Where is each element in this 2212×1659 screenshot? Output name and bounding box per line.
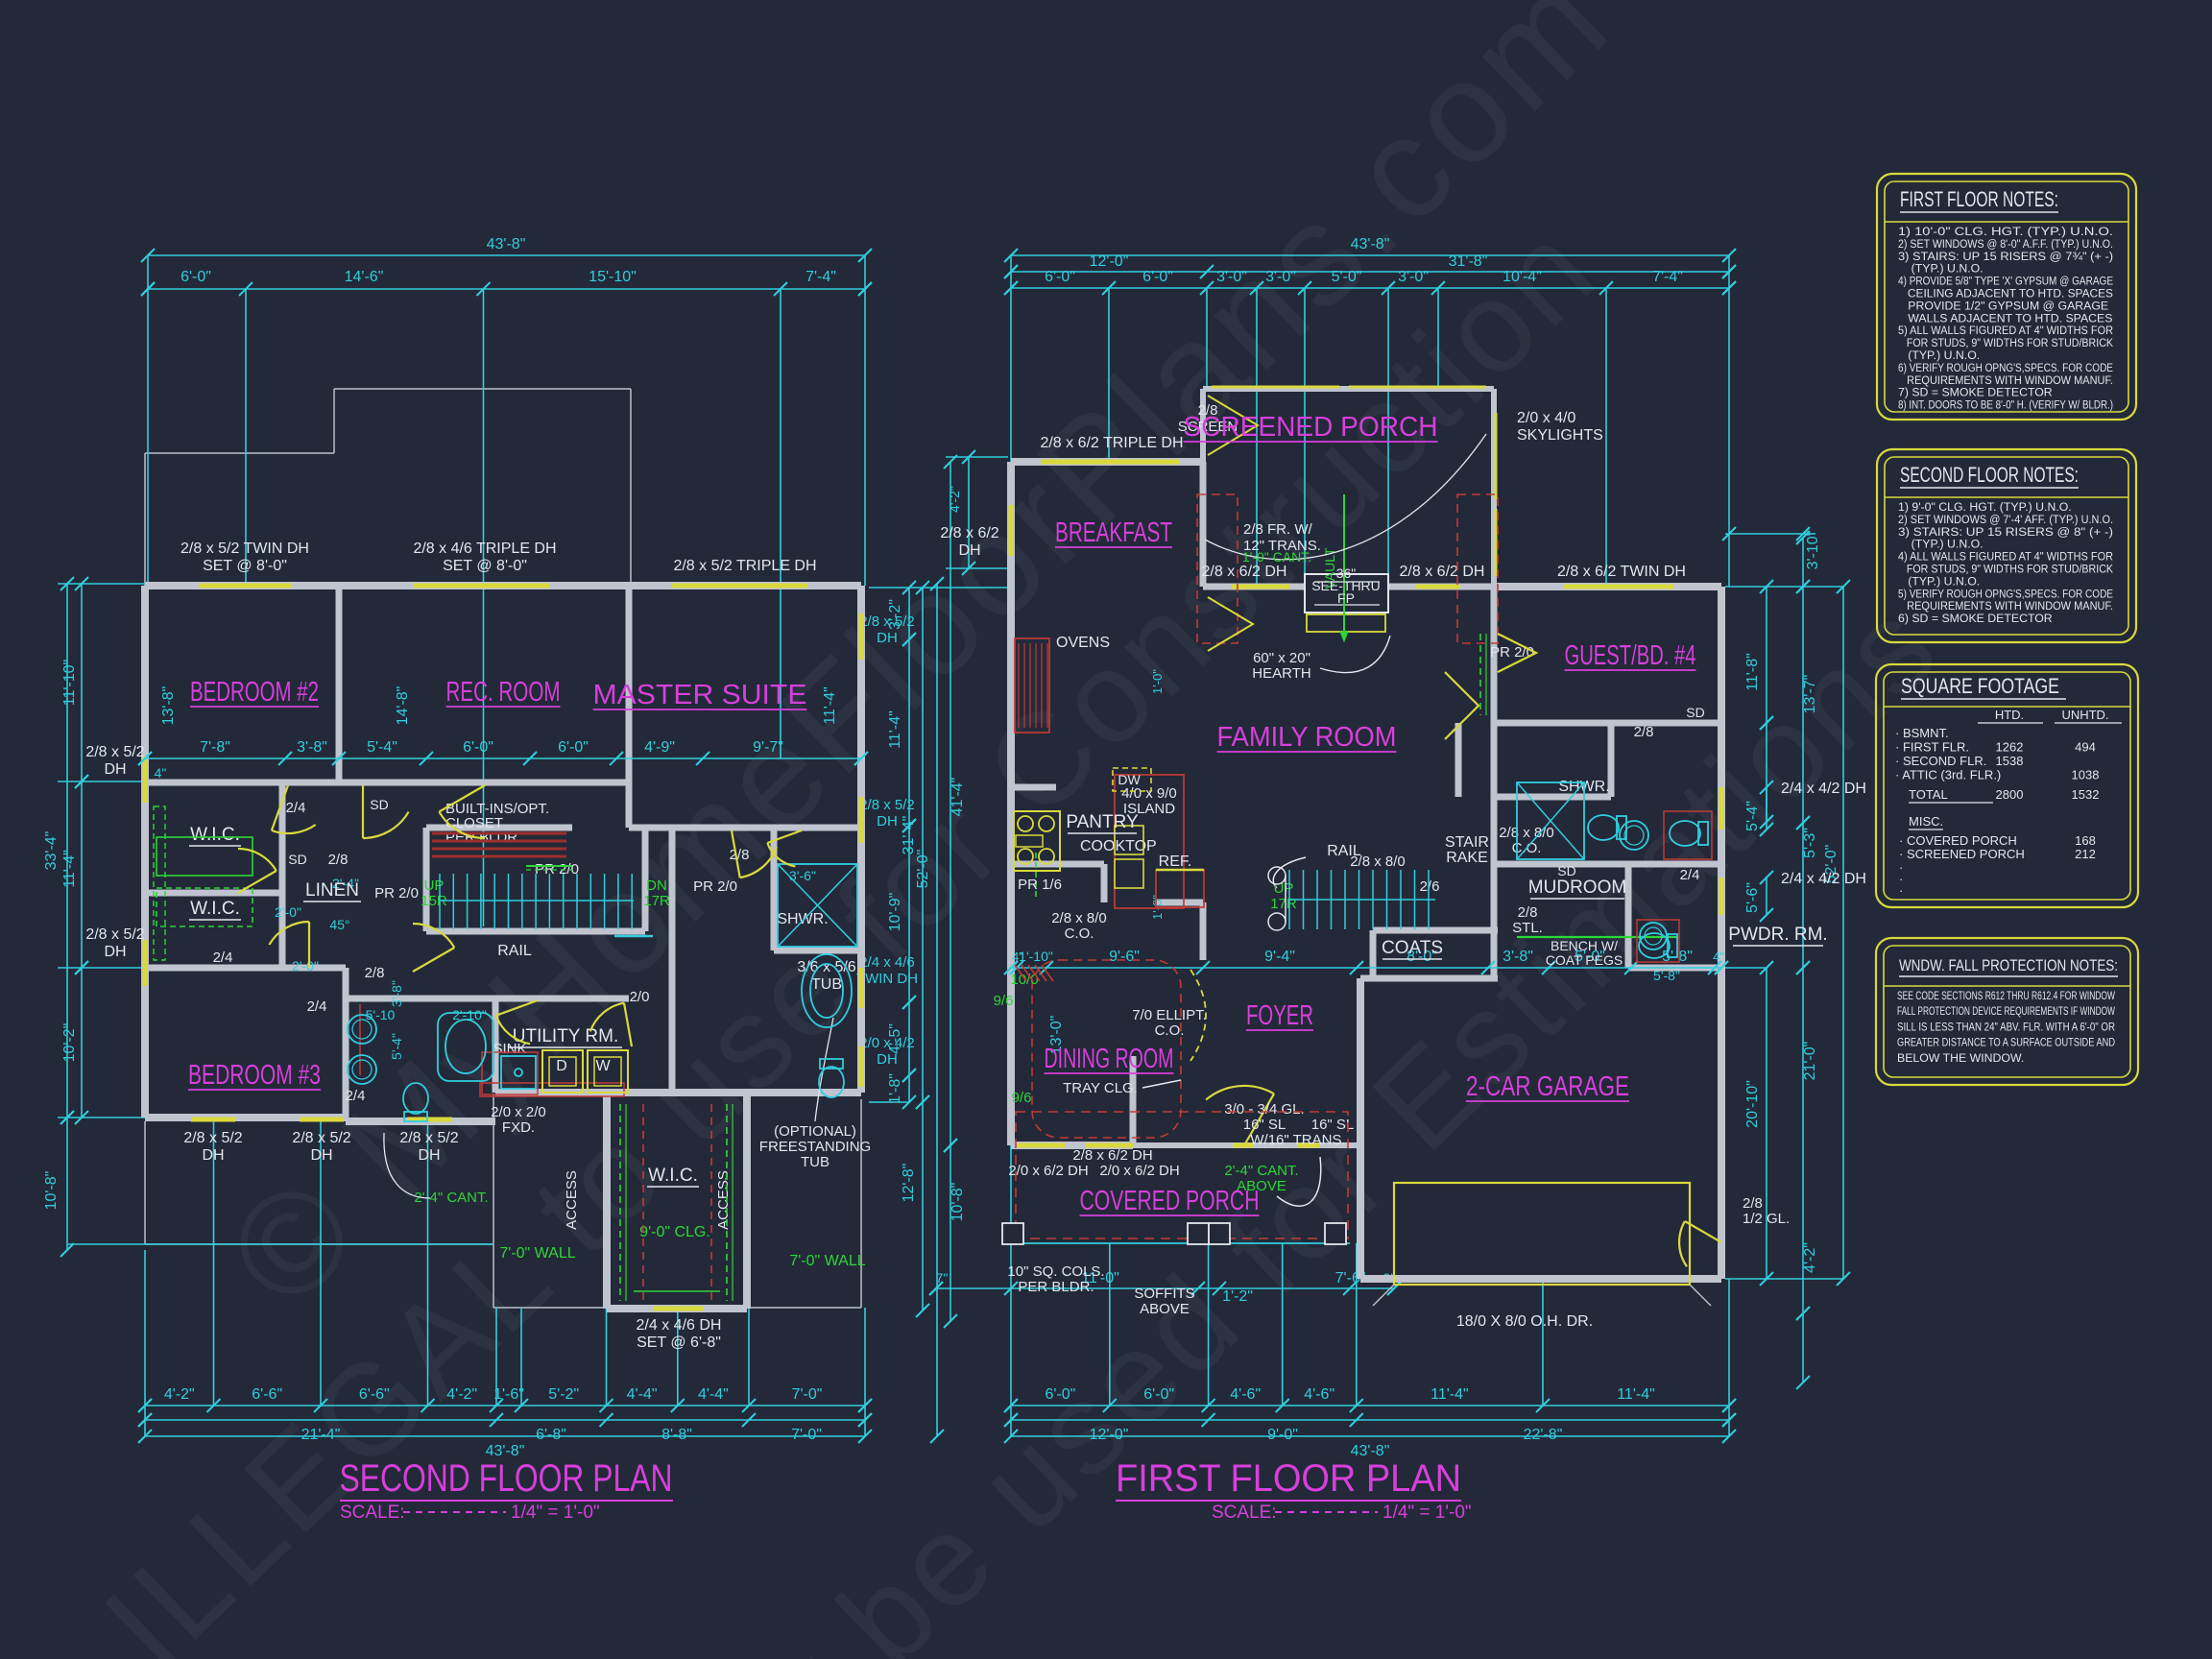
svg-text:2/4: 2/4	[286, 800, 306, 816]
svg-text:SINK: SINK	[493, 1041, 526, 1057]
svg-text:(TYP.) U.N.O.: (TYP.) U.N.O.	[1898, 574, 1980, 588]
svg-text:43'-8": 43'-8"	[1351, 236, 1390, 252]
svg-text:C.O.: C.O.	[1065, 926, 1094, 942]
svg-text:3'-8": 3'-8"	[1503, 949, 1533, 965]
svg-text:ABOVE: ABOVE	[1237, 1178, 1286, 1194]
svg-text:DH: DH	[202, 1147, 224, 1164]
svg-text:2/8: 2/8	[1518, 904, 1538, 921]
svg-text:TWIN DH: TWIN DH	[856, 971, 918, 987]
svg-text:5'-2": 5'-2"	[548, 1386, 579, 1403]
svg-text:COVERED PORCH: COVERED PORCH	[1080, 1186, 1260, 1216]
svg-text:43'-8": 43'-8"	[487, 236, 526, 252]
svg-text:PR 2/0: PR 2/0	[374, 885, 419, 902]
svg-text:4) PROVIDE 5/8" TYPE 'X' GYPSU: 4) PROVIDE 5/8" TYPE 'X' GYPSUM @ GARAGE	[1898, 275, 2113, 288]
svg-text:2/4 x 4/6: 2/4 x 4/6	[859, 954, 915, 971]
svg-text:SKYLIGHTS: SKYLIGHTS	[1517, 427, 1603, 444]
svg-text:12'-0": 12'-0"	[1090, 253, 1129, 270]
svg-text:10" SQ. COLS.: 10" SQ. COLS.	[1007, 1263, 1104, 1280]
svg-text:2/8: 2/8	[365, 965, 385, 981]
svg-text:2/4 x 4/6 DH: 2/4 x 4/6 DH	[637, 1317, 722, 1334]
svg-text:PROVIDE 1/2" GYPSUM @ GARAGE: PROVIDE 1/2" GYPSUM @ GARAGE	[1898, 299, 2108, 312]
svg-text:13'-8": 13'-8"	[160, 686, 177, 726]
svg-text:1) 9'-0" CLG. HGT. (TYP.) U.N: 1) 9'-0" CLG. HGT. (TYP.) U.N.O.	[1898, 500, 2072, 514]
svg-text:4'-2": 4'-2"	[446, 1386, 477, 1403]
svg-text:5'-3": 5'-3"	[1802, 828, 1818, 858]
svg-text:6'-6": 6'-6"	[252, 1386, 282, 1403]
svg-text:11'-4": 11'-4"	[887, 710, 903, 749]
svg-text:SOFFITS: SOFFITS	[1134, 1286, 1194, 1302]
svg-text:2/8 x 5/2: 2/8 x 5/2	[292, 1130, 350, 1146]
svg-text:8'-8": 8'-8"	[661, 1427, 692, 1443]
svg-text:5) ALL WALLS FIGURED AT 4" WID: 5) ALL WALLS FIGURED AT 4" WIDTHS FOR	[1898, 324, 2113, 337]
svg-text:2/8: 2/8	[328, 852, 349, 868]
svg-text:PR 2/0: PR 2/0	[693, 878, 737, 895]
svg-text:13'-7": 13'-7"	[1802, 675, 1818, 714]
svg-text:9/6: 9/6	[1012, 1090, 1032, 1106]
svg-text:W/16" TRANS.: W/16" TRANS.	[1250, 1132, 1345, 1148]
svg-text:9/6: 9/6	[994, 993, 1014, 1009]
svg-text:4'-6": 4'-6"	[1230, 1386, 1261, 1403]
svg-text:2/8 x 6/2 DH: 2/8 x 6/2 DH	[1400, 564, 1485, 580]
svg-text:494: 494	[2075, 740, 2096, 755]
svg-text:1) 10'-0" CLG. HGT. (TYP.) U.: 1) 10'-0" CLG. HGT. (TYP.) U.N.O.	[1898, 225, 2113, 238]
svg-text:18/0 X 8/0 O.H. DR.: 18/0 X 8/0 O.H. DR.	[1456, 1313, 1593, 1330]
svg-text:BENCH W/: BENCH W/	[1551, 938, 1618, 953]
svg-text:14'-8": 14'-8"	[395, 686, 411, 726]
svg-text:W.I.C.: W.I.C.	[190, 899, 240, 919]
svg-text:REQUIREMENTS WITH WINDOW MANUF: REQUIREMENTS WITH WINDOW MANUF.	[1898, 599, 2113, 613]
svg-text:DN: DN	[646, 878, 667, 894]
svg-text:2/8 x 6/2 TRIPLE DH: 2/8 x 6/2 TRIPLE DH	[1040, 435, 1183, 451]
svg-text:MUDROOM: MUDROOM	[1528, 878, 1626, 898]
svg-text:4'-2": 4'-2"	[947, 486, 962, 513]
svg-text:11'-4": 11'-4"	[1431, 1386, 1469, 1403]
svg-text:6'-6": 6'-6"	[359, 1386, 390, 1403]
svg-text:6'-0": 6'-0"	[558, 739, 589, 756]
svg-text:FOYER: FOYER	[1246, 1000, 1313, 1031]
svg-text:(OPTIONAL): (OPTIONAL)	[774, 1123, 856, 1140]
svg-text:60" x 20": 60" x 20"	[1253, 650, 1310, 666]
svg-text:SCALE:: SCALE:	[1212, 1503, 1277, 1523]
svg-text:(TYP.) U.N.O.: (TYP.) U.N.O.	[1898, 349, 1980, 362]
svg-text:DH: DH	[310, 1147, 332, 1164]
svg-text:2/8 x 6/2 DH: 2/8 x 6/2 DH	[1202, 564, 1287, 580]
svg-text:2'-0": 2'-0"	[275, 904, 301, 920]
svg-text:5'-8": 5'-8"	[1653, 968, 1680, 983]
svg-text:FXD.: FXD.	[502, 1119, 535, 1136]
svg-text:2/8 x 4/6 TRIPLE DH: 2/8 x 4/6 TRIPLE DH	[413, 541, 556, 557]
svg-text:SD: SD	[1686, 705, 1704, 720]
svg-text:MISC.: MISC.	[1909, 814, 1943, 829]
svg-text:22'-8": 22'-8"	[1524, 1427, 1563, 1443]
svg-text:11'-8": 11'-8"	[1744, 653, 1761, 691]
svg-text:1038: 1038	[2072, 768, 2100, 782]
svg-text:RAKE: RAKE	[1446, 850, 1488, 866]
svg-text:OVENS: OVENS	[1056, 635, 1110, 651]
svg-text:WNDW. FALL PROTECTION NOTES:: WNDW. FALL PROTECTION NOTES:	[1899, 956, 2118, 974]
svg-text:1'-2": 1'-2"	[1222, 1288, 1253, 1305]
svg-text:7": 7"	[936, 1270, 949, 1286]
svg-text:33'-4": 33'-4"	[43, 831, 60, 871]
svg-text:6) SD = SMOKE DETECTOR: 6) SD = SMOKE DETECTOR	[1898, 612, 2053, 625]
svg-text:8) INT. DOORS TO BE 8'-0" H. (: 8) INT. DOORS TO BE 8'-0" H. (VERIFY W/ …	[1898, 398, 2113, 412]
svg-text:SECOND FLOOR PLAN: SECOND FLOOR PLAN	[340, 1457, 673, 1500]
svg-text:2/8 x 5/2: 2/8 x 5/2	[85, 744, 144, 760]
svg-text:2/4 x 4/2 DH: 2/4 x 4/2 DH	[1781, 781, 1866, 797]
svg-text:2'-0": 2'-0"	[292, 958, 319, 974]
svg-text:6'-0": 6'-0"	[1142, 269, 1173, 285]
svg-text:ACCESS: ACCESS	[715, 1170, 732, 1230]
svg-text:3) STAIRS: UP 15 RISERS @ 7¾": 3) STAIRS: UP 15 RISERS @ 7¾" (+ -)	[1898, 250, 2113, 263]
svg-text:2/8 x 6/2 DH: 2/8 x 6/2 DH	[1072, 1147, 1152, 1164]
svg-text:16" SL: 16" SL	[1243, 1117, 1286, 1133]
svg-text:SD: SD	[370, 797, 388, 812]
svg-text:11'-10": 11'-10"	[61, 660, 78, 706]
svg-text:UP: UP	[424, 878, 445, 894]
svg-text:4/0 x 9/0: 4/0 x 9/0	[1121, 785, 1177, 802]
svg-text:11'-4": 11'-4"	[822, 686, 838, 725]
svg-text:DW: DW	[1118, 772, 1141, 787]
svg-text:2/8 x 5/2: 2/8 x 5/2	[859, 797, 915, 813]
svg-text:4) ALL WALLS FIGURED AT 4" WID: 4) ALL WALLS FIGURED AT 4" WIDTHS FOR	[1898, 550, 2113, 564]
svg-text:9'-6": 9'-6"	[1109, 949, 1140, 965]
svg-text:2/4: 2/4	[1680, 867, 1700, 883]
svg-text:6'-8": 6'-8"	[536, 1427, 566, 1443]
svg-text:10'-2": 10'-2"	[61, 1023, 78, 1063]
svg-text:7/0 ELLIPT.: 7/0 ELLIPT.	[1132, 1007, 1207, 1023]
svg-text:DH: DH	[958, 542, 980, 559]
svg-text:2/8 x 6/2 TWIN DH: 2/8 x 6/2 TWIN DH	[1557, 564, 1686, 580]
svg-text:1'-0" CANT.: 1'-0" CANT.	[1242, 549, 1311, 565]
svg-text:COOKTOP: COOKTOP	[1080, 838, 1157, 854]
svg-text:2/8 x 8/0: 2/8 x 8/0	[1051, 910, 1107, 926]
svg-text:REQUIREMENTS WITH WINDOW MANUF: REQUIREMENTS WITH WINDOW MANUF.	[1898, 373, 2113, 387]
svg-text:12'-0": 12'-0"	[1090, 1427, 1129, 1443]
svg-text:MASTER SUITE: MASTER SUITE	[593, 680, 807, 710]
svg-text:6'-0": 6'-0"	[1045, 269, 1075, 285]
svg-text:2/8 x 5/2: 2/8 x 5/2	[399, 1130, 458, 1146]
svg-text:· FIRST FLR.: · FIRST FLR.	[1895, 740, 1969, 755]
svg-text:GREATER DISTANCE TO A SURFACE: GREATER DISTANCE TO A SURFACE OUTSIDE AN…	[1897, 1036, 2115, 1049]
svg-text:41'-4": 41'-4"	[950, 778, 966, 817]
svg-text:7'-0": 7'-0"	[791, 1427, 822, 1443]
svg-text:COATS: COATS	[1382, 938, 1443, 958]
svg-text:21'-0": 21'-0"	[1802, 1042, 1818, 1081]
svg-text:168: 168	[2075, 833, 2096, 848]
svg-text:PER BLDR.: PER BLDR.	[1018, 1279, 1094, 1295]
svg-text:W.I.C.: W.I.C.	[648, 1166, 698, 1186]
svg-text:6'-0": 6'-0"	[1143, 1386, 1174, 1403]
svg-text:· ATTIC (3rd. FLR.): · ATTIC (3rd. FLR.)	[1895, 768, 2001, 782]
svg-text:FOR STUDS, 9" WIDTHS FOR STUD/: FOR STUDS, 9" WIDTHS FOR STUD/BRICK	[1898, 336, 2114, 349]
svg-text:5'-4": 5'-4"	[389, 1033, 404, 1060]
svg-text:FALL PROTECTION DEVICE REQUIRE: FALL PROTECTION DEVICE REQUIREMENTS IF W…	[1897, 1004, 2115, 1018]
svg-text:SET @ 8'-0": SET @ 8'-0"	[443, 558, 527, 574]
svg-text:9'-7": 9'-7"	[753, 739, 783, 756]
svg-text:2/0 x 6/2 DH: 2/0 x 6/2 DH	[1008, 1163, 1088, 1179]
svg-text:GUEST/BD. #4: GUEST/BD. #4	[1565, 640, 1696, 671]
svg-text:TUB: TUB	[801, 1154, 829, 1170]
svg-text:SECOND FLOOR NOTES:: SECOND FLOOR NOTES:	[1900, 463, 2079, 487]
svg-text:COAT PEGS: COAT PEGS	[1546, 952, 1623, 968]
svg-text:7'-4": 7'-4"	[805, 269, 836, 285]
svg-text:DINING ROOM: DINING ROOM	[1045, 1044, 1174, 1074]
svg-text:3'-8": 3'-8"	[297, 739, 327, 756]
svg-text:STAIR: STAIR	[1445, 834, 1489, 851]
svg-text:2/8: 2/8	[730, 847, 750, 863]
svg-text:W: W	[595, 1058, 611, 1074]
svg-text:2/8 x 6/2: 2/8 x 6/2	[940, 525, 998, 541]
svg-text:3'-8": 3'-8"	[389, 980, 404, 1007]
svg-text:4'-2": 4'-2"	[164, 1386, 195, 1403]
svg-text:2/8: 2/8	[1743, 1195, 1763, 1212]
svg-text:2/8 x 5/2: 2/8 x 5/2	[859, 613, 915, 630]
svg-text:31'-4": 31'-4"	[901, 816, 917, 855]
svg-text:· COVERED PORCH: · COVERED PORCH	[1899, 833, 2017, 848]
svg-text:4": 4"	[1713, 950, 1724, 964]
svg-text:2800: 2800	[1996, 787, 2024, 802]
svg-text:6'-0": 6'-0"	[1045, 1386, 1075, 1403]
svg-text:FOR STUDS, 9" WIDTHS FOR STUD/: FOR STUDS, 9" WIDTHS FOR STUD/BRICK	[1898, 563, 2114, 576]
svg-text:TRAY CLG.: TRAY CLG.	[1063, 1080, 1138, 1096]
svg-text:2/0 x 2/0: 2/0 x 2/0	[491, 1104, 546, 1120]
svg-text:3/0 - 3/4 GL.: 3/0 - 3/4 GL.	[1224, 1101, 1304, 1118]
svg-text:BEDROOM #3: BEDROOM #3	[188, 1060, 321, 1091]
svg-text:6) VERIFY ROUGH OPNG'S,SPECS.: 6) VERIFY ROUGH OPNG'S,SPECS. FOR CODE	[1898, 361, 2113, 374]
svg-text:PANTRY: PANTRY	[1066, 812, 1139, 832]
svg-text:17R: 17R	[1270, 896, 1297, 912]
svg-text:2-CAR GARAGE: 2-CAR GARAGE	[1466, 1071, 1629, 1102]
svg-text:1/4" = 1'-0": 1/4" = 1'-0"	[511, 1503, 600, 1523]
svg-text:6'-0": 6'-0"	[463, 739, 493, 756]
svg-text:DH: DH	[418, 1147, 440, 1164]
svg-text:D: D	[556, 1058, 567, 1074]
svg-text:3/6 x 5/6: 3/6 x 5/6	[797, 959, 855, 975]
svg-text:ABOVE: ABOVE	[1140, 1301, 1190, 1317]
svg-text:2/0 x 6/2 DH: 2/0 x 6/2 DH	[1099, 1163, 1179, 1179]
svg-text:CEILING ADJACENT TO HTD. SPACE: CEILING ADJACENT TO HTD. SPACES	[1898, 287, 2113, 301]
svg-text:2/4: 2/4	[213, 950, 233, 966]
svg-text:3'-0": 3'-0"	[1265, 269, 1296, 285]
svg-text:SEE CODE SECTIONS R612 THRU R6: SEE CODE SECTIONS R612 THRU R612.4 FOR W…	[1897, 989, 2115, 1002]
svg-text:SHWR.: SHWR.	[777, 911, 828, 927]
svg-text:(TYP.) U.N.O.: (TYP.) U.N.O.	[1898, 538, 1984, 551]
svg-text:5'-4": 5'-4"	[367, 739, 397, 756]
svg-text:5'-10: 5'-10	[366, 1007, 396, 1022]
svg-text:3'-10": 3'-10"	[1805, 531, 1821, 570]
svg-text:PWDR. RM.: PWDR. RM.	[1728, 925, 1827, 945]
svg-text:TOTAL: TOTAL	[1909, 787, 1948, 802]
svg-text:W.I.C.: W.I.C.	[190, 825, 240, 845]
svg-text:2/4 x 4/2 DH: 2/4 x 4/2 DH	[1781, 871, 1866, 887]
svg-text:5'-0": 5'-0"	[1332, 269, 1362, 285]
svg-text:3'-0": 3'-0"	[1398, 269, 1429, 285]
svg-text:DH: DH	[877, 813, 898, 829]
svg-text:45°: 45°	[329, 917, 349, 932]
svg-text:10'-8": 10'-8"	[43, 1171, 60, 1211]
svg-text:2/8 x 5/2: 2/8 x 5/2	[183, 1130, 242, 1146]
svg-text:FREESTANDING: FREESTANDING	[759, 1139, 871, 1155]
svg-text:9'-4": 9'-4"	[1264, 949, 1295, 965]
svg-text:11'-4": 11'-4"	[1617, 1386, 1655, 1403]
svg-text:DH: DH	[104, 761, 126, 778]
svg-text:2) SET WINDOWS @ 7'-4' AFF. (T: 2) SET WINDOWS @ 7'-4' AFF. (TYP.) U.N.O…	[1898, 513, 2113, 526]
svg-text:C.O.: C.O.	[1155, 1022, 1185, 1039]
svg-text:· SECOND FLR.: · SECOND FLR.	[1895, 754, 1986, 768]
svg-text:1/2 GL.: 1/2 GL.	[1743, 1211, 1790, 1227]
svg-text:2) SET WINDOWS @ 8'-0" A.F.F.: 2) SET WINDOWS @ 8'-0" A.F.F. (TYP.) U.N…	[1898, 237, 2113, 251]
svg-text:(TYP.) U.N.O.: (TYP.) U.N.O.	[1898, 262, 1984, 276]
svg-text:SD: SD	[1557, 863, 1575, 878]
svg-text:4'-2": 4'-2"	[1802, 1242, 1818, 1273]
svg-text:2/0: 2/0	[630, 989, 650, 1005]
svg-text:FP: FP	[1337, 590, 1355, 606]
svg-text:2/8 x 5/2: 2/8 x 5/2	[85, 926, 144, 943]
svg-text:SILL IS LESS THAN 24" ABV. FLR: SILL IS LESS THAN 24" ABV. FLR. WITH A 6…	[1897, 1020, 2115, 1033]
svg-text:212: 212	[2075, 847, 2096, 861]
svg-text:5'-4": 5'-4"	[1744, 801, 1761, 831]
svg-text:52'-0": 52'-0"	[915, 850, 931, 889]
svg-text:2/4: 2/4	[346, 1088, 366, 1104]
svg-text:4'-9": 4'-9"	[644, 739, 675, 756]
svg-text:1'-8": 1'-8"	[887, 1073, 903, 1104]
svg-text:UNHTD.: UNHTD.	[2061, 708, 2108, 722]
svg-text:2/6: 2/6	[1420, 878, 1440, 895]
svg-text:11'-4": 11'-4"	[61, 850, 78, 888]
svg-text:2/8 x 5/2 TRIPLE DH: 2/8 x 5/2 TRIPLE DH	[673, 558, 816, 574]
svg-text:STL.: STL.	[1512, 920, 1543, 936]
svg-text:2/0 x 4/2: 2/0 x 4/2	[859, 1035, 915, 1051]
svg-text:FIRST FLOOR NOTES:: FIRST FLOOR NOTES:	[1900, 187, 2058, 211]
svg-text:BREAKFAST: BREAKFAST	[1055, 517, 1172, 548]
svg-text:UP: UP	[1274, 880, 1294, 897]
svg-text:5'-6": 5'-6"	[1744, 882, 1761, 913]
svg-text:1'-6": 1'-6"	[493, 1386, 524, 1403]
svg-text:FIRST FLOOR PLAN: FIRST FLOOR PLAN	[1116, 1457, 1461, 1500]
svg-text:LINEN: LINEN	[305, 880, 359, 901]
svg-text:SD: SD	[288, 852, 306, 867]
svg-text:2/8 FR. W/: 2/8 FR. W/	[1243, 521, 1313, 538]
svg-text:7'-8": 7'-8"	[200, 739, 230, 756]
svg-text:4'-4": 4'-4"	[627, 1386, 658, 1403]
svg-text:WALLS ADJACENT TO HTD. SPACES: WALLS ADJACENT TO HTD. SPACES	[1898, 311, 2112, 325]
svg-text:1262: 1262	[1996, 740, 2024, 755]
svg-text:2/8 x 5/2 TWIN DH: 2/8 x 5/2 TWIN DH	[180, 541, 309, 557]
svg-text:ACCESS: ACCESS	[564, 1170, 580, 1230]
svg-text:· SCREENED PORCH: · SCREENED PORCH	[1899, 847, 2025, 861]
svg-text:1538: 1538	[1996, 754, 2024, 768]
svg-text:REF.: REF.	[1159, 854, 1192, 870]
svg-text:REC. ROOM: REC. ROOM	[446, 677, 561, 708]
svg-text:DH: DH	[877, 630, 898, 646]
svg-text:3'-0": 3'-0"	[1216, 269, 1247, 285]
svg-text:17R: 17R	[643, 893, 670, 909]
svg-text:DH: DH	[877, 1051, 898, 1068]
svg-text:· BSMNT.: · BSMNT.	[1895, 726, 1949, 740]
svg-text:2'-4" CANT.: 2'-4" CANT.	[1224, 1163, 1298, 1179]
svg-text:2/8 x 8/0: 2/8 x 8/0	[1350, 854, 1406, 870]
svg-text:SQUARE FOOTAGE: SQUARE FOOTAGE	[1901, 674, 2059, 698]
svg-text:BELOW THE WINDOW.: BELOW THE WINDOW.	[1897, 1051, 2024, 1065]
svg-text:SCREENED PORCH: SCREENED PORCH	[1184, 412, 1438, 443]
svg-text:7) SD = SMOKE DETECTOR: 7) SD = SMOKE DETECTOR	[1898, 386, 2053, 399]
svg-text:9'-0" CLG.: 9'-0" CLG.	[639, 1224, 710, 1240]
svg-text:RAIL: RAIL	[497, 943, 532, 959]
svg-text:15'-10": 15'-10"	[589, 269, 637, 285]
svg-text:SCALE:: SCALE:	[340, 1503, 405, 1523]
svg-text:SET @ 6'-8": SET @ 6'-8"	[637, 1334, 721, 1351]
svg-text:·: ·	[1899, 883, 1903, 898]
svg-text:10'-4": 10'-4"	[1503, 269, 1542, 285]
svg-text:6'-0": 6'-0"	[180, 269, 211, 285]
svg-text:21'-4": 21'-4"	[301, 1427, 341, 1443]
svg-text:4'-6": 4'-6"	[1304, 1386, 1334, 1403]
svg-text:4'-4": 4'-4"	[698, 1386, 729, 1403]
svg-text:20'-10": 20'-10"	[1744, 1080, 1761, 1128]
svg-text:10'-8": 10'-8"	[950, 1183, 966, 1222]
svg-text:12'-8": 12'-8"	[901, 1164, 917, 1203]
svg-text:SET @ 8'-0": SET @ 8'-0"	[203, 558, 287, 574]
svg-text:FAMILY ROOM: FAMILY ROOM	[1217, 722, 1397, 753]
svg-text:31'-8": 31'-8"	[1449, 253, 1488, 270]
svg-text:7'-0" WALL: 7'-0" WALL	[499, 1245, 575, 1262]
svg-text:HTD.: HTD.	[1995, 708, 2024, 722]
svg-text:2/8: 2/8	[1634, 724, 1654, 740]
svg-text:1'-0": 1'-0"	[1150, 669, 1165, 694]
svg-text:7'-0": 7'-0"	[792, 1386, 823, 1403]
svg-text:DH: DH	[104, 944, 126, 960]
svg-text:1/4" = 1'-0": 1/4" = 1'-0"	[1382, 1503, 1472, 1523]
svg-text:2/0 x 4/0: 2/0 x 4/0	[1517, 410, 1575, 426]
svg-text:10'-9": 10'-9"	[887, 893, 903, 932]
svg-text:TUB: TUB	[811, 976, 842, 993]
svg-text:14'-6": 14'-6"	[345, 269, 384, 285]
svg-text:3) STAIRS: UP 15 RISERS @ 8" (: 3) STAIRS: UP 15 RISERS @ 8" (+ -)	[1898, 525, 2113, 539]
svg-text:1532: 1532	[2072, 787, 2100, 802]
svg-text:4": 4"	[155, 765, 167, 781]
svg-text:BEDROOM #2: BEDROOM #2	[190, 677, 319, 708]
svg-text:5) VERIFY ROUGH OPNG'S,SPECS.: 5) VERIFY ROUGH OPNG'S,SPECS. FOR CODE	[1898, 587, 2113, 600]
svg-text:PR 1/6: PR 1/6	[1018, 877, 1062, 893]
svg-text:9'-0": 9'-0"	[1267, 1427, 1298, 1443]
svg-text:HEARTH: HEARTH	[1252, 665, 1310, 682]
svg-text:7'-0" WALL: 7'-0" WALL	[789, 1253, 865, 1269]
svg-text:7'-4": 7'-4"	[1652, 269, 1683, 285]
svg-text:2/4: 2/4	[307, 998, 327, 1015]
